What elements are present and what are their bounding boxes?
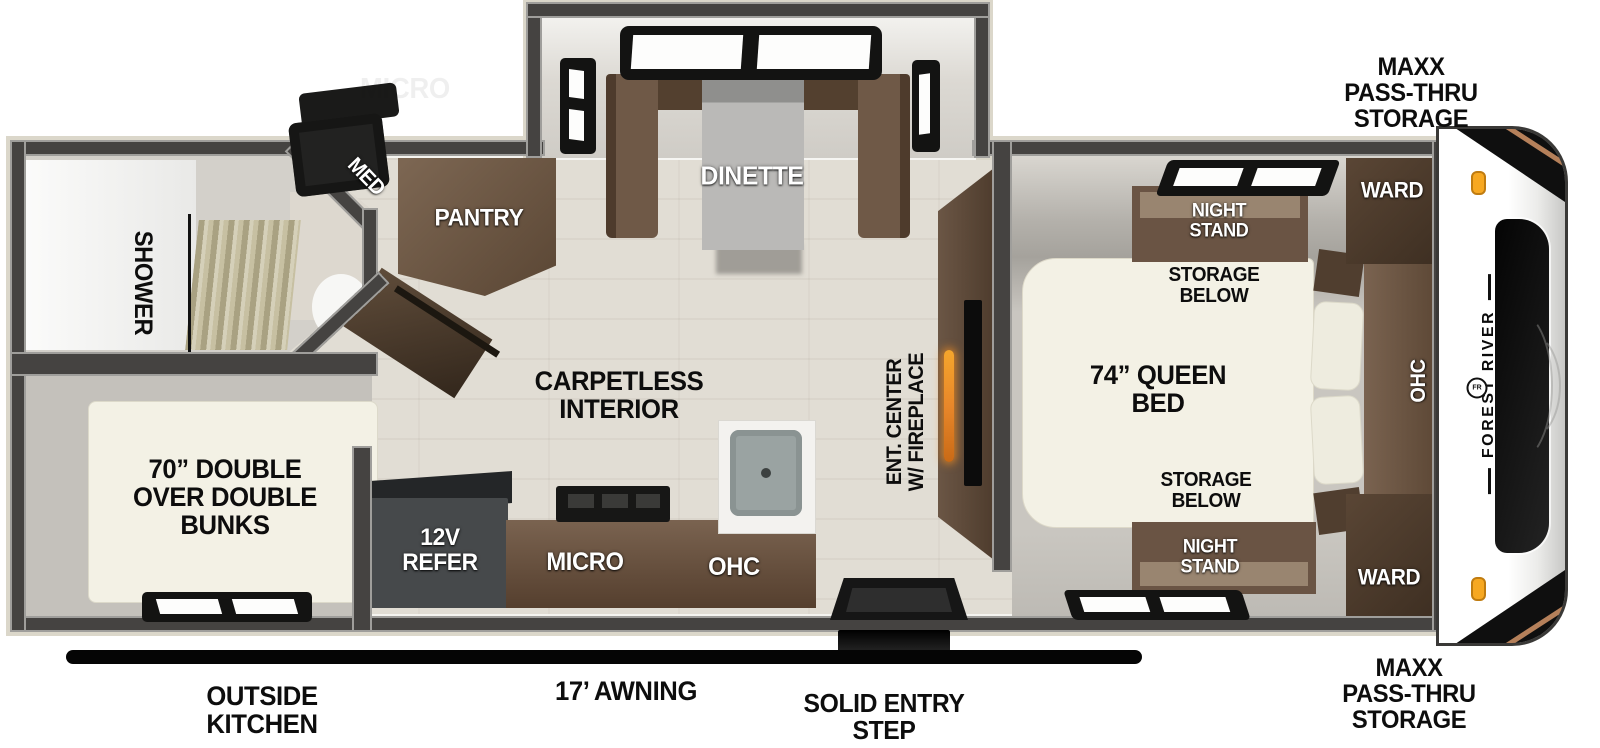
window-glass [156, 599, 222, 614]
outside-kitchen-hatch [142, 592, 312, 622]
wardrobe-bottom [1346, 494, 1436, 616]
cap-shading-arc [1487, 329, 1561, 443]
dinette-window-top [620, 26, 882, 80]
shower-pan [26, 160, 196, 350]
shower-curtain [185, 220, 301, 350]
wall-top-right [972, 140, 1450, 156]
refer-label: 12V REFER [402, 526, 477, 576]
window-glass [232, 599, 298, 614]
slide-wall-left [526, 2, 542, 158]
bedroom-window-top [1155, 160, 1340, 196]
marker-light-top [1471, 171, 1486, 195]
fr-logo-icon: FR [1467, 378, 1488, 399]
dinette-table [702, 56, 804, 250]
wardrobe-top [1346, 158, 1436, 264]
brand-rule [1488, 274, 1491, 300]
front-storage-top-label: MAXX PASS-THRU STORAGE [1297, 54, 1525, 132]
entry-mat-inner [846, 588, 952, 612]
shower-label: SHOWER [130, 231, 156, 336]
bedroom-wall [992, 140, 1012, 572]
window-glass [1173, 168, 1244, 186]
front-cap [1436, 126, 1568, 646]
slide-wall-top [526, 2, 990, 18]
storage-below-bottom-label: STORAGE BELOW [1161, 470, 1252, 512]
entry-step-label: SOLID ENTRY STEP [804, 690, 965, 744]
night-stand-bottom-label: NIGHT STAND [1181, 537, 1240, 577]
wall-left [10, 140, 26, 632]
window-glass [757, 35, 871, 69]
bed-pillow [1310, 395, 1365, 485]
slide-wall-right [974, 2, 990, 158]
queen-bed-label: 74” QUEEN BED [1054, 361, 1263, 417]
storage-below-top-label: STORAGE BELOW [1169, 265, 1260, 307]
brand-rule [1488, 468, 1491, 494]
dinette-window-right [912, 60, 940, 152]
cooktop [556, 486, 670, 522]
ghost-micro-label: MICRO [360, 74, 450, 104]
kitchen-sink [730, 430, 802, 516]
micro-label: MICRO [546, 549, 623, 575]
ward-top-label: WARD [1361, 180, 1423, 203]
window-glass [631, 35, 743, 69]
awning-label: 17’ AWNING [555, 677, 697, 705]
bunkroom-wall-top [10, 352, 378, 376]
fireplace-flame [944, 350, 954, 462]
entry-door-mat [830, 578, 968, 620]
carpetless-interior-label: CARPETLESS INTERIOR [496, 367, 743, 423]
marker-light-bottom [1471, 577, 1486, 601]
wall-top-left [10, 140, 545, 156]
floorplan-canvas: FOREST RIVER FR MICRO DINETTE PANTRY MED… [0, 0, 1600, 748]
curtain-track [188, 214, 191, 352]
cooktop-grate [636, 494, 660, 508]
bunks-label: 70” DOUBLE OVER DOUBLE BUNKS [83, 455, 368, 539]
sink-drain [761, 468, 771, 478]
tv-screen [964, 300, 982, 486]
window-glass [1251, 168, 1322, 186]
window-glass [919, 73, 930, 135]
outside-kitchen-label: OUTSIDE KITCHEN [206, 682, 317, 738]
awning-line [66, 650, 1142, 664]
front-storage-bottom-label: MAXX PASS-THRU STORAGE [1295, 655, 1523, 733]
bedroom-window-bottom [1063, 590, 1251, 620]
dinette-window-left [560, 58, 596, 154]
dinette-bench-left [606, 74, 658, 238]
cap-decal-bottom [1439, 547, 1565, 643]
bedroom-ohc-label: OHC [1408, 359, 1430, 402]
ward-bottom-label: WARD [1358, 567, 1420, 590]
window-glass [1079, 597, 1150, 612]
window-glass [569, 109, 584, 141]
dinette-bench-right [858, 74, 910, 238]
dinette-label: DINETTE [700, 162, 803, 189]
cap-decal-top [1439, 129, 1565, 225]
cooktop-grate [568, 494, 594, 508]
window-glass [569, 69, 584, 99]
ent-center-label: ENT. CENTER W/ FIREPLACE [884, 327, 928, 517]
cooktop-grate [602, 494, 628, 508]
night-stand-top-label: NIGHT STAND [1190, 201, 1249, 241]
pantry-label: PANTRY [435, 207, 524, 232]
window-glass [1159, 597, 1230, 612]
bed-pillow [1310, 301, 1365, 391]
kitchen-ohc-label: OHC [708, 554, 760, 580]
